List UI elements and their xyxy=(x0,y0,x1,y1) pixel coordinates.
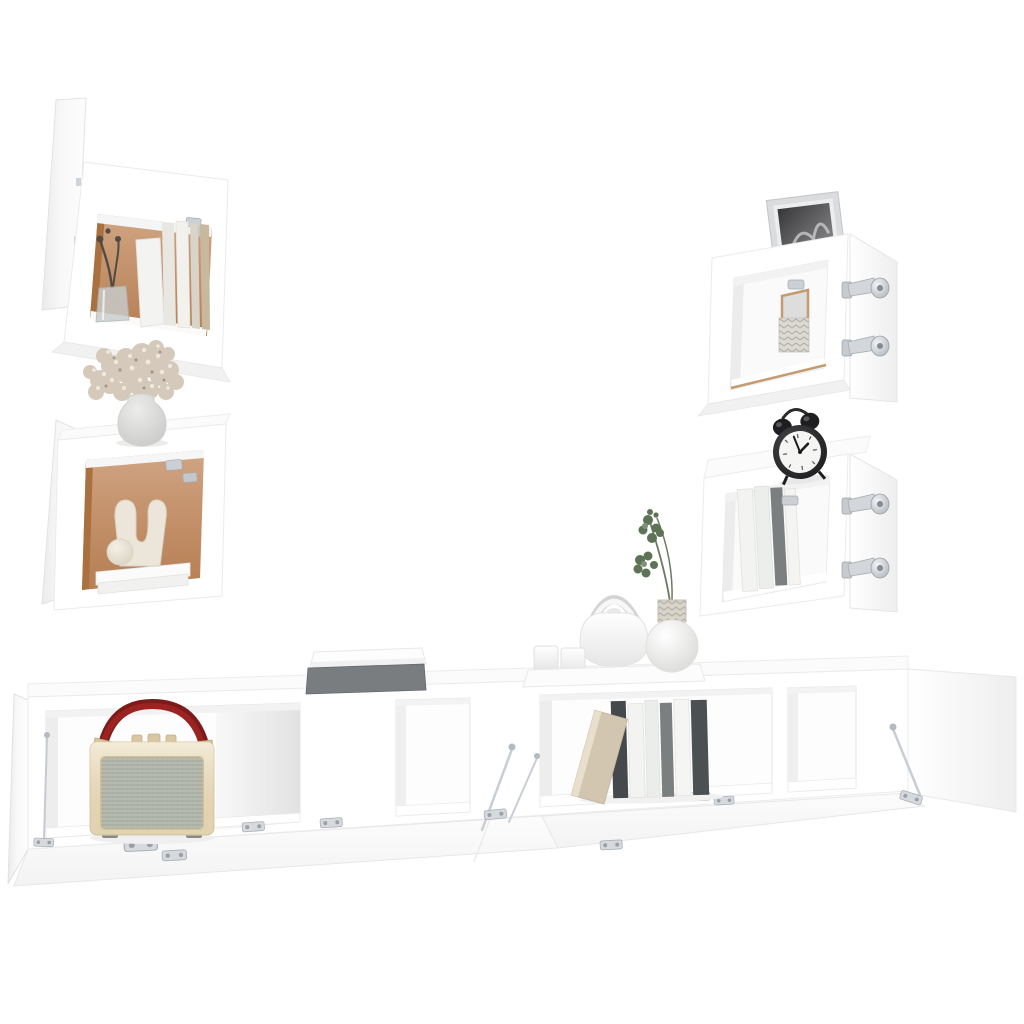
teapot-body xyxy=(580,613,648,667)
sculpture-sphere xyxy=(107,539,133,565)
branch-leaf xyxy=(97,236,104,243)
eucalyptus-leaf-light xyxy=(641,561,647,567)
interior-hinge-plate xyxy=(782,496,798,505)
interior xyxy=(730,260,828,390)
leaning-canvas xyxy=(136,238,164,327)
box-base xyxy=(306,664,426,694)
book xyxy=(176,221,190,328)
open-door xyxy=(850,234,897,402)
product-photo-canvas xyxy=(0,0,1024,1024)
tea-cup xyxy=(534,646,558,671)
interior xyxy=(722,476,830,602)
book xyxy=(674,699,692,795)
woven-vase-texture xyxy=(779,318,809,352)
bench-opening-2 xyxy=(396,698,470,816)
book xyxy=(628,703,645,797)
book xyxy=(162,222,176,326)
branch-leaf xyxy=(115,236,121,242)
interior-hinge-plate xyxy=(788,280,804,289)
book xyxy=(691,700,709,795)
bench-right-side-door xyxy=(908,669,1016,812)
vase-neck-texture xyxy=(658,600,686,622)
book xyxy=(660,703,674,797)
glass-vase xyxy=(96,286,129,322)
round-vase-body xyxy=(646,620,698,672)
storage-box xyxy=(306,648,426,694)
eucalyptus-leaf-light xyxy=(642,523,648,529)
furniture-scene xyxy=(0,0,1024,1024)
book xyxy=(645,700,661,797)
radio-grille-weave xyxy=(101,757,203,829)
glass-highlight xyxy=(103,290,104,320)
door-hinge-mark xyxy=(76,178,81,186)
branch-leaf xyxy=(105,228,110,233)
open-door xyxy=(850,454,897,612)
bench-opening-4 xyxy=(788,686,856,792)
